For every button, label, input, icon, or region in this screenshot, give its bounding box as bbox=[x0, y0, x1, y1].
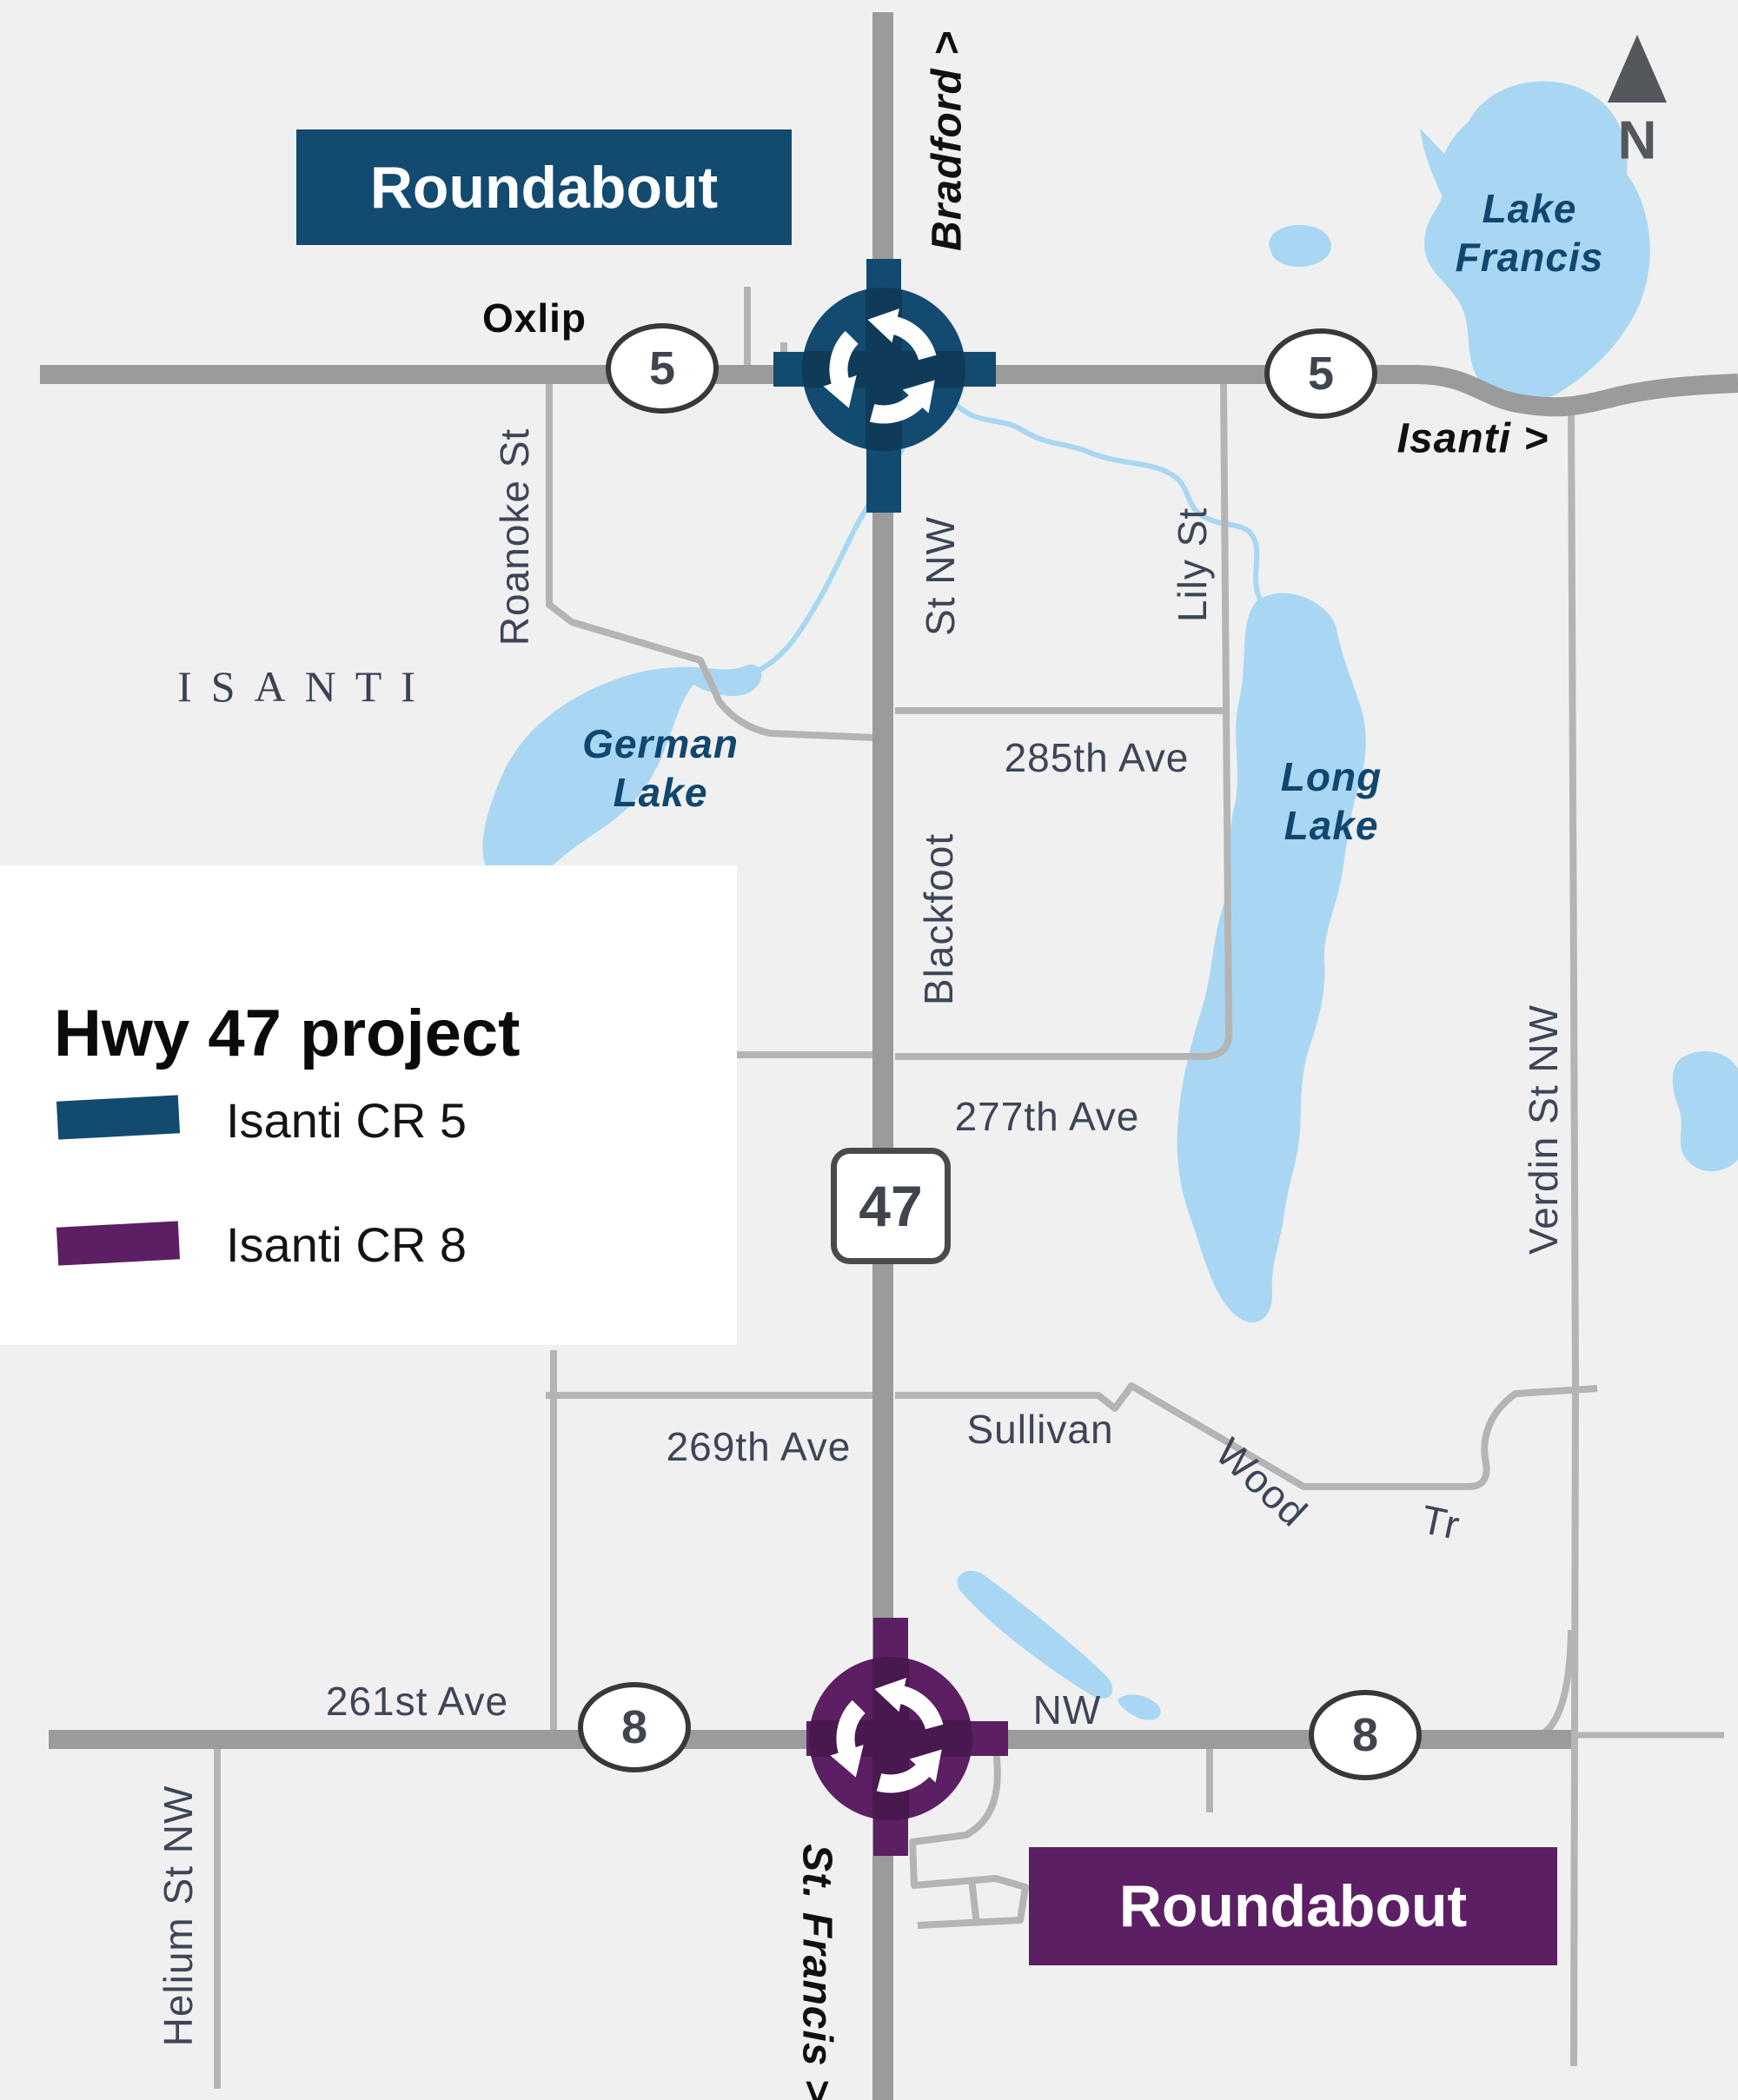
shield-hwy47: 47 bbox=[831, 1148, 951, 1264]
legend-swatch-cr8 bbox=[56, 1221, 180, 1265]
pond-east bbox=[1673, 1051, 1738, 1171]
label-lake-francis-line1: Lake bbox=[1456, 184, 1604, 233]
label-german-lake-line1: German bbox=[582, 719, 739, 768]
north-label: N bbox=[1618, 110, 1657, 172]
label-long-lake-line2: Lake bbox=[1281, 801, 1382, 850]
long-lake bbox=[1177, 593, 1366, 1322]
label-sullivan: Sullivan bbox=[966, 1406, 1113, 1453]
label-long-lake: Long Lake bbox=[1281, 752, 1382, 850]
label-nw: NW bbox=[1033, 1686, 1102, 1733]
label-blackfoot: Blackfoot bbox=[915, 833, 962, 1005]
callout-roundabout-south-text: Roundabout bbox=[1119, 1872, 1467, 1940]
legend-item-cr5: Isanti CR 5 bbox=[226, 1095, 467, 1147]
label-roanoke-st: Roanoke St bbox=[491, 428, 538, 646]
label-277th-ave: 277th Ave bbox=[955, 1093, 1140, 1140]
label-269th-ave: 269th Ave bbox=[667, 1423, 852, 1470]
label-isanti-direction: Isanti > bbox=[1397, 415, 1549, 463]
label-bradford: Bradford > bbox=[924, 30, 972, 251]
shield-cr8-west-number: 8 bbox=[621, 1700, 647, 1754]
label-helium-st-nw: Helium St NW bbox=[155, 1785, 202, 2047]
label-lake-francis-line2: Francis bbox=[1456, 233, 1604, 282]
label-lily-st: Lily St bbox=[1169, 507, 1216, 622]
label-285th-ave: 285th Ave bbox=[1005, 734, 1190, 781]
callout-roundabout-south: Roundabout bbox=[1029, 1847, 1557, 1965]
label-verdin-st-nw: Verdin St NW bbox=[1520, 1004, 1567, 1255]
shield-hwy47-number: 47 bbox=[859, 1173, 922, 1239]
label-oxlip: Oxlip bbox=[482, 295, 587, 341]
north-arrow-icon bbox=[1608, 35, 1667, 103]
shield-cr8-east: 8 bbox=[1309, 1690, 1422, 1780]
map-canvas: 5 5 47 8 8 Bradford > Oxlip Isanti > Roa… bbox=[0, 0, 1738, 2100]
callout-roundabout-north-text: Roundabout bbox=[370, 154, 718, 222]
roundabout-icon-north bbox=[802, 288, 965, 451]
label-german-lake: German Lake bbox=[582, 719, 739, 817]
legend-swatch-cr5 bbox=[56, 1095, 180, 1139]
shield-cr5-west-number: 5 bbox=[649, 341, 675, 395]
label-st-nw: St NW bbox=[917, 516, 964, 636]
label-german-lake-line2: Lake bbox=[582, 768, 739, 817]
legend-item-cr8: Isanti CR 8 bbox=[226, 1219, 467, 1271]
roundabout-icon-south bbox=[809, 1657, 972, 1820]
label-county-isanti: ISANTI bbox=[177, 661, 434, 712]
shield-cr5-west: 5 bbox=[606, 323, 719, 414]
shield-cr8-west: 8 bbox=[578, 1682, 691, 1772]
legend-title: Hwy 47 project bbox=[54, 996, 520, 1071]
label-lake-francis: Lake Francis bbox=[1456, 184, 1604, 282]
road-roanoke-st bbox=[549, 384, 876, 738]
pond-small bbox=[1269, 225, 1331, 267]
road-ramp-verdin bbox=[1531, 1630, 1571, 1739]
label-st-francis: St. Francis > bbox=[793, 1844, 841, 2100]
label-261st-ave: 261st Ave bbox=[326, 1678, 508, 1725]
label-long-lake-line1: Long bbox=[1281, 752, 1382, 801]
pond-tiny bbox=[1118, 1694, 1161, 1719]
pond-diagonal bbox=[957, 1571, 1112, 1699]
road-verdin-st bbox=[1571, 405, 1575, 2066]
shield-cr5-east: 5 bbox=[1264, 328, 1377, 419]
shield-cr8-east-number: 8 bbox=[1352, 1708, 1378, 1762]
shield-cr5-east-number: 5 bbox=[1308, 347, 1334, 401]
callout-roundabout-north: Roundabout bbox=[296, 129, 792, 245]
